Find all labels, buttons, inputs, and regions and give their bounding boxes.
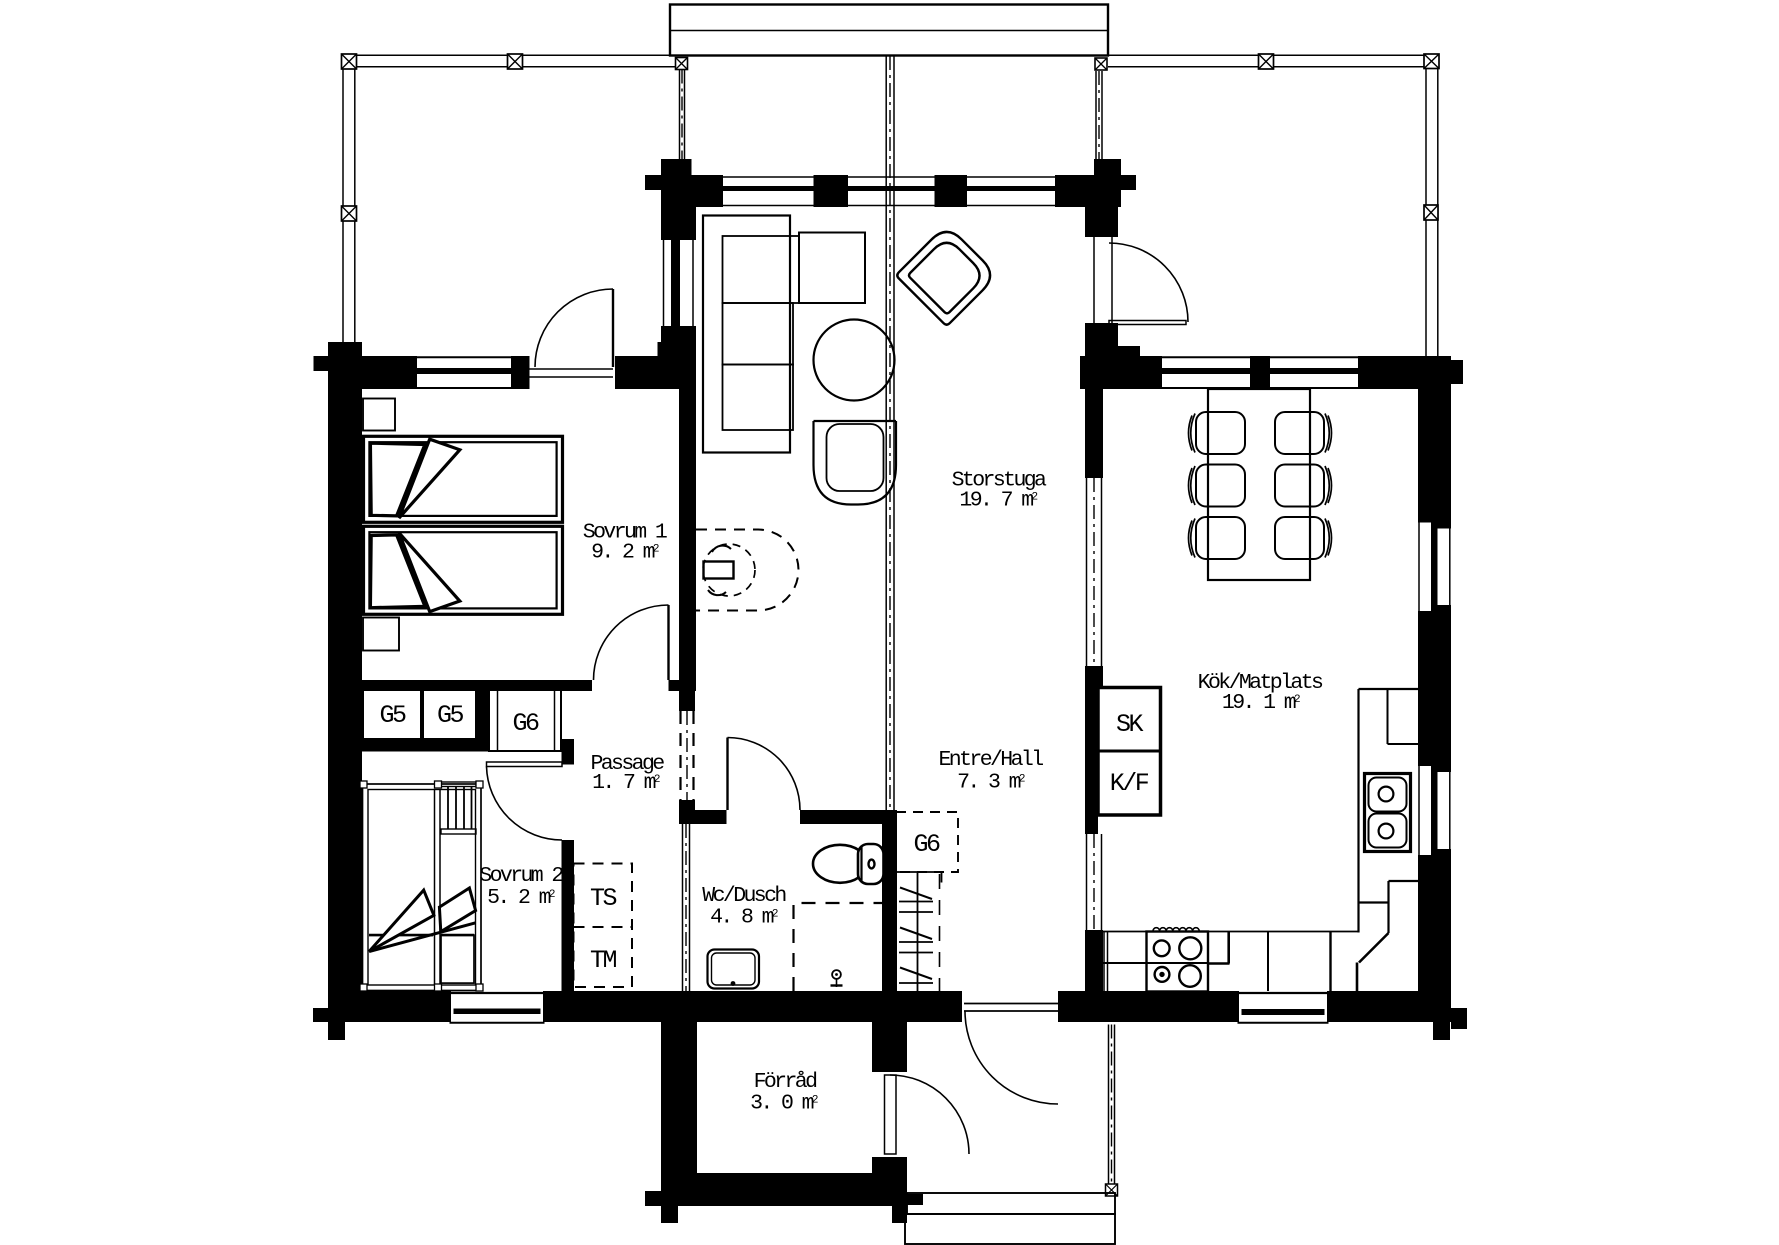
svg-text:Förråd: Förråd	[754, 1069, 818, 1094]
svg-text:9. 2 m2: 9. 2 m2	[591, 541, 659, 565]
svg-text:4. 8 m2: 4. 8 m2	[710, 906, 778, 930]
svg-text:7. 3 m2: 7. 3 m2	[957, 771, 1025, 795]
svg-text:Entre/Hall: Entre/Hall	[938, 748, 1043, 772]
svg-text:Wc/Dusch: Wc/Dusch	[702, 884, 786, 908]
svg-text:G6: G6	[913, 830, 940, 859]
svg-text:G6: G6	[512, 709, 539, 738]
svg-text:TM: TM	[590, 946, 617, 975]
svg-text:19. 7 m2: 19. 7 m2	[959, 489, 1037, 513]
svg-text:K/F: K/F	[1110, 769, 1149, 798]
svg-text:SK: SK	[1116, 710, 1144, 739]
svg-text:1. 7 m2: 1. 7 m2	[592, 771, 660, 795]
svg-text:G5: G5	[437, 701, 464, 730]
svg-text:G5: G5	[379, 701, 406, 730]
svg-text:5. 2 m2: 5. 2 m2	[487, 886, 555, 910]
svg-text:19. 1 m2: 19. 1 m2	[1222, 691, 1300, 715]
svg-text:3. 0 m2: 3. 0 m2	[750, 1092, 818, 1116]
svg-text:Sovrum 2: Sovrum 2	[479, 864, 563, 888]
svg-text:TS: TS	[590, 884, 617, 913]
